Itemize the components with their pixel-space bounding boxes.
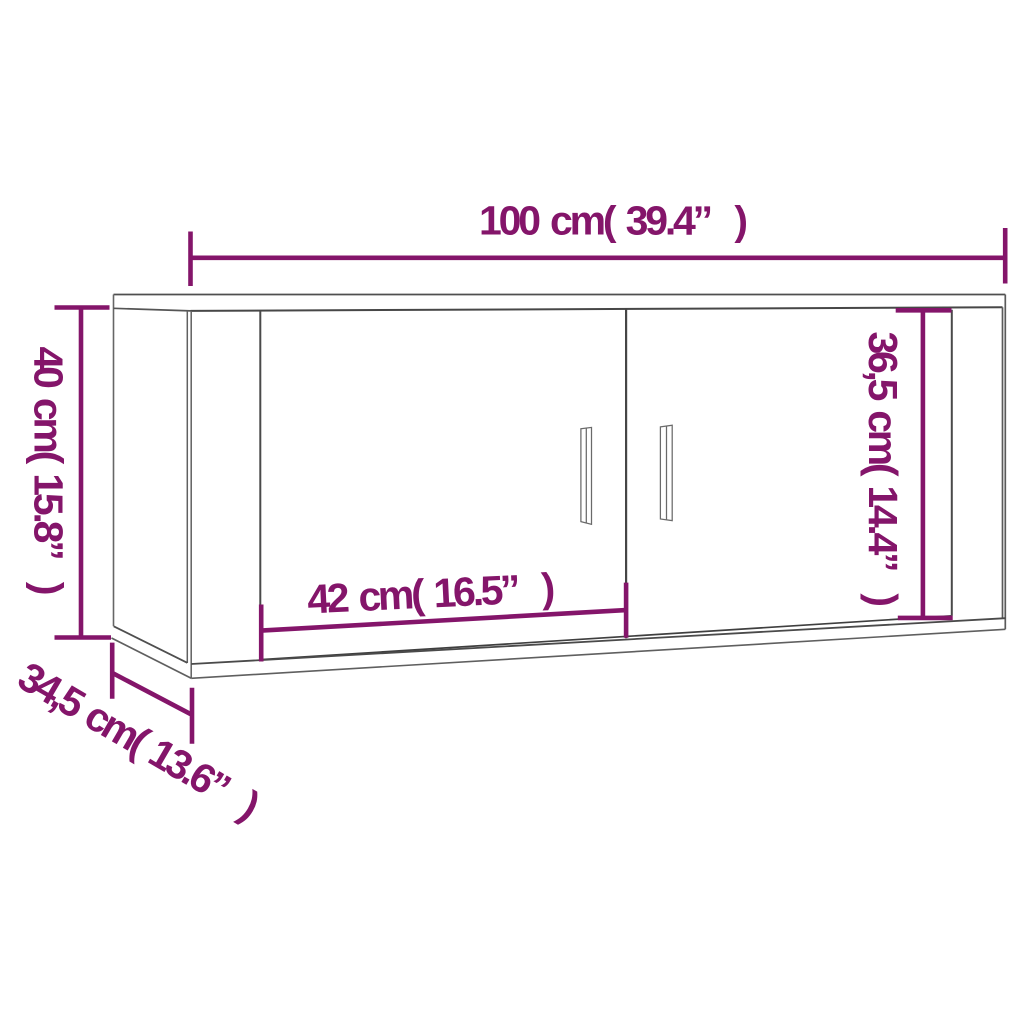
svg-text:100 cm( 39.4” ): 100 cm( 39.4” )	[479, 198, 748, 244]
svg-text:40 cm( 15.8” ): 40 cm( 15.8” )	[26, 347, 72, 596]
svg-text:42 cm( 16.5” ): 42 cm( 16.5” )	[306, 564, 556, 622]
svg-text:36,5 cm( 14.4” ): 36,5 cm( 14.4” )	[860, 332, 906, 608]
svg-text:34,5 cm( 13.6” ): 34,5 cm( 13.6” )	[10, 653, 267, 829]
